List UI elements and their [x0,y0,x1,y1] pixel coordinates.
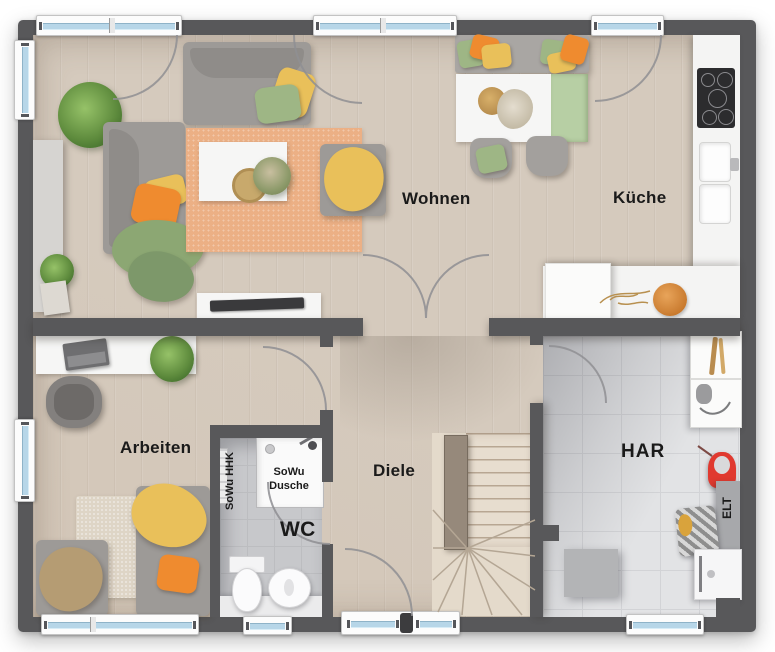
door-handle-icon [400,613,413,633]
shelf-divider [691,378,741,380]
room-label-diele: Diele [373,461,415,481]
kitchen-base-cabinet [545,263,611,320]
plant-bag [40,280,70,315]
wall-mid-left [33,318,363,336]
window-glass [633,622,697,629]
office-chair [46,376,102,428]
office-chair-cushion [54,384,94,420]
window-bath-bottom [243,616,292,635]
floor-plan: Wohnen Küche Arbeiten Diele WC HAR SoWu … [0,0,775,652]
room-label-arbeiten: Arbeiten [120,438,191,458]
sink-basin [699,184,731,224]
window-wohnen-top [36,15,182,36]
wall-har-stub-bottom-right [716,598,740,617]
window-dining-top [313,15,457,36]
elt-label: ELT [720,493,734,523]
window-har-bottom [626,614,704,635]
wall-har-pier [543,525,559,541]
decor-sticks-icon [718,338,725,374]
bidet-hole [284,579,294,596]
staircase-newel-wall [444,435,468,550]
burner-icon [718,109,734,125]
bidet-bowl [268,568,311,608]
pillow-green-icon [254,83,303,125]
window-wohnen-left [14,40,35,120]
wall-bath-top [210,425,333,438]
window-glass [22,426,29,495]
sink-basin [699,142,731,182]
window-glass [22,47,29,113]
window-mullion [380,18,386,33]
toilet-bowl [232,568,262,612]
wall-bath-left [210,438,220,617]
room-label-har: HAR [621,441,665,463]
window-glass [598,23,657,30]
shower-drain-icon [265,444,275,454]
shower-label-line1: SoWu [274,466,305,478]
window-glass [48,622,192,629]
cooktop [697,68,735,128]
room-label-kueche: Küche [613,188,666,208]
burner-icon [701,73,715,87]
window-mullion [109,18,115,33]
vacuum-inner [714,456,730,474]
window-mullion [90,617,96,632]
burner-icon [702,110,717,125]
pillow-orange-icon [156,553,201,594]
window-arbeiten-left [14,419,35,502]
fruit-bowl-icon [653,283,687,316]
table-plant-icon [253,157,291,195]
table-runner [551,74,588,142]
washing-machine-knob-icon [707,570,715,578]
wall-bath-right-upper [322,438,333,482]
desk-plant-icon [150,336,194,382]
room-label-wohnen: Wohnen [402,189,471,209]
window-arbeiten-bottom [41,614,199,635]
wall-mid-right [489,318,740,336]
room-label-wc: WC [280,518,316,542]
entrance-door [341,611,460,635]
window-glass [250,623,285,630]
laptop-keyboard [67,351,106,367]
wall-bath-right-lower [322,544,333,617]
wall-arbeiten-stub-bottom [320,410,333,425]
burner-icon [717,72,733,88]
laundry-yellow [677,514,693,537]
faucet-icon [730,158,739,171]
window-kueche-top [591,15,664,36]
gadget-icon [696,384,712,404]
washing-machine-slit [699,556,702,592]
wall-arbeiten-stub-top [320,336,333,347]
shower-label: SoWu Dusche [259,466,319,494]
dining-chair [526,136,568,176]
shower-head-icon [308,441,317,450]
pillow-yellow-icon [481,43,512,70]
wall-har-left [530,403,543,617]
burner-icon [708,89,727,108]
staircase-upper-flight [466,433,535,547]
radiator-label: SoWu HHK [224,451,238,511]
decor-sticks-icon [709,337,718,375]
door-sidelight-glass [420,621,452,628]
door-sidelight-glass [351,621,395,628]
har-shelf [690,331,742,428]
diele-shadow [340,336,555,446]
washing-machine [694,549,742,600]
shower-label-line2: Dusche [269,480,309,492]
wall-har-stub-top [530,336,543,345]
storage-cube [564,549,618,597]
